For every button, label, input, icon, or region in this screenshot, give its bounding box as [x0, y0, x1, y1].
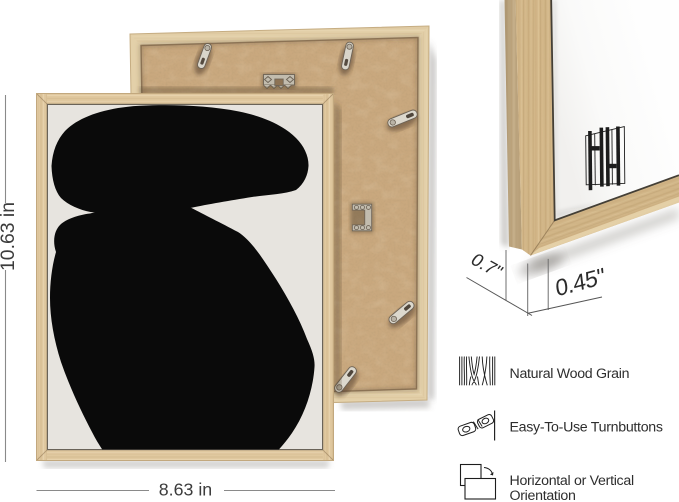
svg-text:10.63 in: 10.63 in — [0, 202, 19, 271]
svg-text:0.45": 0.45" — [554, 262, 606, 301]
svg-text:Orientation: Orientation — [510, 488, 576, 502]
svg-text:0.7": 0.7" — [467, 249, 507, 281]
svg-text:8.63 in: 8.63 in — [159, 480, 212, 500]
svg-text:Horizontal or Vertical: Horizontal or Vertical — [510, 473, 634, 489]
svg-text:Easy-To-Use Turnbuttons: Easy-To-Use Turnbuttons — [510, 420, 663, 436]
svg-text:Natural Wood Grain: Natural Wood Grain — [510, 366, 630, 382]
